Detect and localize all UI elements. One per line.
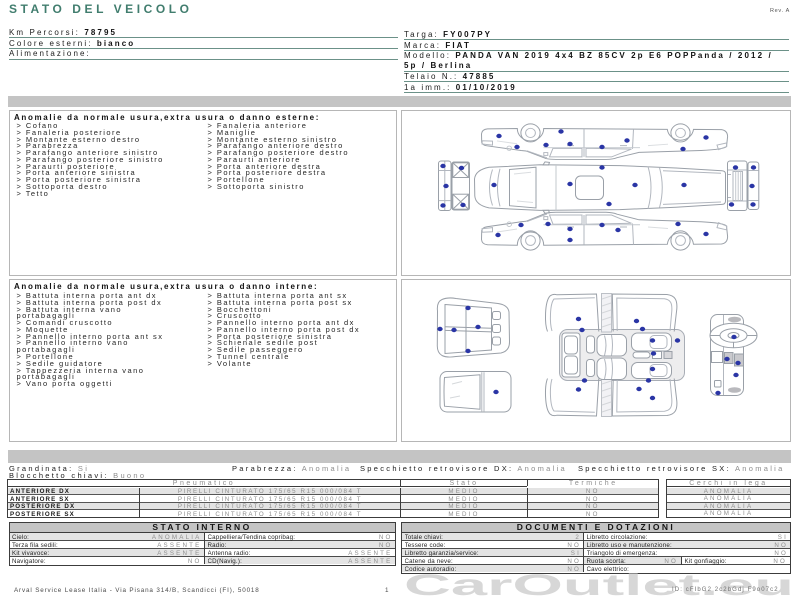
svg-text:CarOutlet.eu: CarOutlet.eu: [404, 569, 794, 600]
